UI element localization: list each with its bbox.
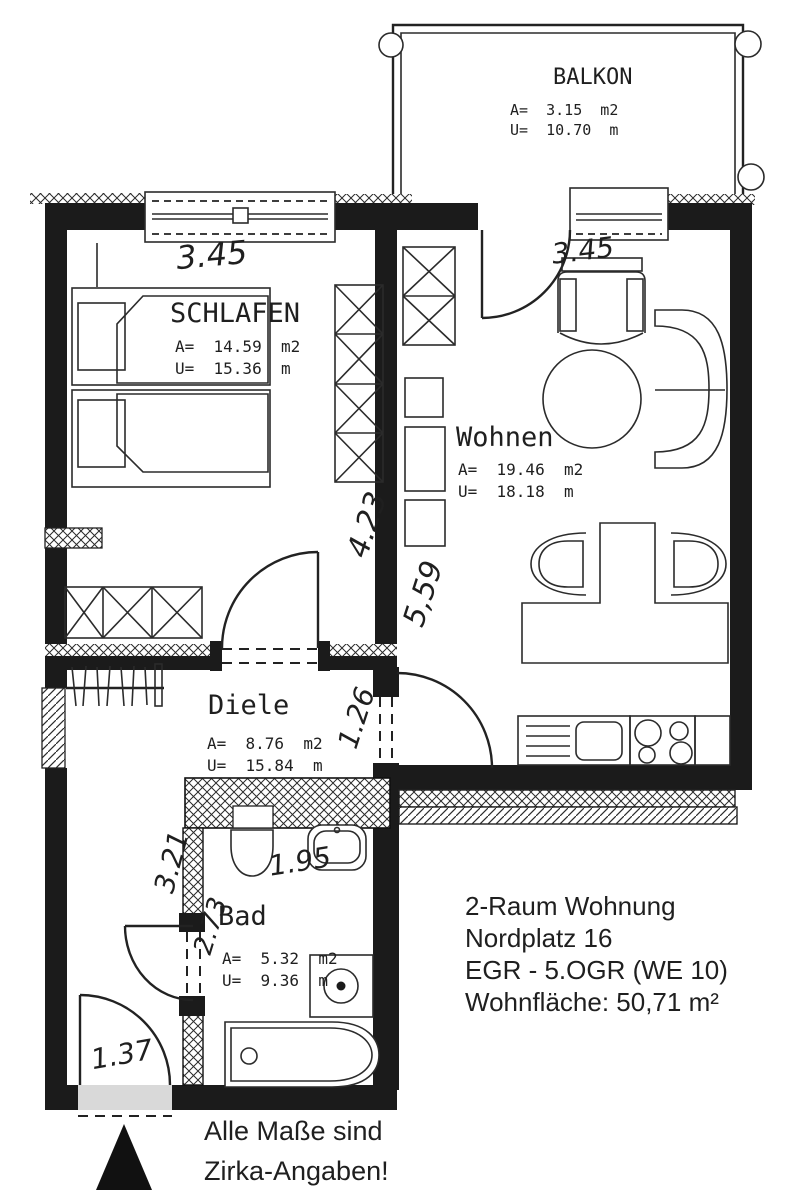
door-opening (222, 649, 318, 663)
cistern-niche (233, 806, 273, 828)
balcony-label: BALKON (553, 65, 632, 90)
shelf-icon (405, 427, 445, 491)
wall-segment (45, 768, 67, 1098)
schlafen-perimeter: U= 15.36 m (175, 359, 291, 378)
bad-area: A= 5.32 m2 (222, 949, 338, 968)
drainer-lines (526, 726, 570, 756)
plan-geometry (560, 333, 643, 344)
door-swing-arc (125, 926, 193, 1000)
bad-wall (183, 1014, 203, 1085)
diele-label: Diele (208, 690, 289, 721)
diele-area: A= 8.76 m2 (207, 734, 323, 753)
plan-geometry (627, 279, 643, 331)
basin (576, 722, 622, 760)
bad-door (125, 926, 200, 1000)
hatch-strip (399, 807, 737, 824)
dim-wohnen-depth: 5,59 (397, 557, 451, 631)
hatch-strip (45, 644, 210, 656)
bad-installation-wall (185, 778, 390, 828)
plan-geometry (65, 587, 202, 638)
plan-geometry (155, 664, 162, 706)
window-mullion (233, 208, 248, 223)
plan-geometry (558, 272, 645, 333)
shelf-icon (405, 378, 443, 417)
plan-geometry (539, 541, 583, 587)
pillow (78, 400, 125, 467)
footer: Alle Maße sind Zirka-Angaben! (96, 1116, 389, 1190)
counter-icon (695, 716, 730, 765)
hatch-strip (30, 193, 148, 204)
plan-geometry (72, 666, 147, 706)
door-post (210, 641, 222, 671)
info-line-4: Wohnfläche: 50,71 m² (465, 987, 719, 1017)
info-line-2: Nordplatz 16 (465, 923, 612, 953)
wall-segment (45, 203, 67, 688)
floor-plan-page: BALKON A= 3.15 m2 U= 10.70 m (0, 0, 790, 1200)
wohnen-area: A= 19.46 m2 (458, 460, 583, 479)
wall-segment (332, 203, 478, 230)
wall-segment (397, 765, 752, 790)
plan-geometry (655, 310, 727, 468)
bad-perimeter: U= 9.36 m (222, 971, 328, 990)
sofa-icon (655, 310, 727, 468)
plan-geometry (639, 747, 655, 763)
dim-wohnen-width: 3.45 (550, 230, 616, 270)
bathtub-icon (225, 1022, 379, 1087)
blanket (117, 394, 268, 472)
plan-geometry (225, 1022, 379, 1087)
diele-perimeter: U= 15.84 m (207, 756, 323, 775)
info-block: 2-Raum Wohnung Nordplatz 16 EGR - 5.OGR … (465, 891, 728, 1017)
dim-schlafen-width: 3.45 (175, 233, 249, 277)
dim-diele-opening: 1.26 (331, 683, 382, 752)
coat-rack-icon (66, 664, 164, 706)
wohnen-furniture (403, 247, 730, 765)
schlafen-door (222, 552, 318, 663)
balcony-post-icon (735, 31, 761, 57)
balcony-perimeter: U= 10.70 m (510, 121, 618, 139)
bed-icon (72, 390, 270, 487)
chair-icon (671, 533, 726, 595)
schlafen-area: A= 14.59 m2 (175, 337, 300, 356)
chair-icon (531, 533, 586, 595)
plan-geometry (670, 742, 692, 764)
plan-geometry (337, 982, 346, 991)
pillow (78, 303, 125, 370)
wardrobe-icon (65, 587, 202, 638)
plan-geometry (635, 720, 661, 746)
wardrobe-icon (403, 247, 455, 345)
door-swing-arc (222, 552, 318, 648)
wall-segment (375, 230, 397, 648)
balcony-post-icon (379, 33, 403, 57)
info-line-3: EGR - 5.OGR (WE 10) (465, 955, 728, 985)
armchair-icon (558, 258, 645, 344)
plan-geometry (560, 279, 576, 331)
shaft-pier (45, 528, 102, 548)
dim-bad-width: 1.95 (267, 840, 334, 882)
door-swing-arc (397, 673, 492, 768)
balcony: BALKON A= 3.15 m2 U= 10.70 m (379, 25, 764, 203)
wall-segment (730, 203, 752, 790)
wohnen-label: Wohnen (456, 422, 554, 453)
balcony-window (570, 188, 668, 240)
info-line-1: 2-Raum Wohnung (465, 891, 676, 921)
door-opening (380, 697, 392, 763)
shelf-icon (405, 500, 445, 546)
shaft-block (42, 688, 65, 768)
kitchen-sink-icon (518, 716, 630, 765)
entry-threshold (78, 1085, 172, 1110)
round-table-icon (543, 350, 641, 448)
plan-geometry (670, 722, 688, 740)
plan-geometry (518, 716, 630, 765)
dim-entry-door: 1.37 (88, 1033, 155, 1076)
wohnen-perimeter: U= 18.18 m (458, 482, 574, 501)
wall-segment (45, 656, 210, 670)
schlafen-label: SCHLAFEN (170, 298, 300, 329)
plan-geometry (674, 541, 718, 587)
disclaimer-line-1: Alle Maße sind (204, 1116, 383, 1146)
door-post (318, 641, 330, 671)
balcony-area: A= 3.15 m2 (510, 101, 618, 119)
plan-geometry (65, 587, 202, 638)
disclaimer-line-2: Zirka-Angaben! (204, 1156, 389, 1186)
balcony-post-icon (738, 164, 764, 190)
floor-plan-drawing: BALKON A= 3.15 m2 U= 10.70 m (0, 0, 790, 1200)
stove-icon (630, 716, 695, 765)
hatch-strip (399, 790, 735, 807)
entrance-triangle-icon (96, 1124, 152, 1190)
